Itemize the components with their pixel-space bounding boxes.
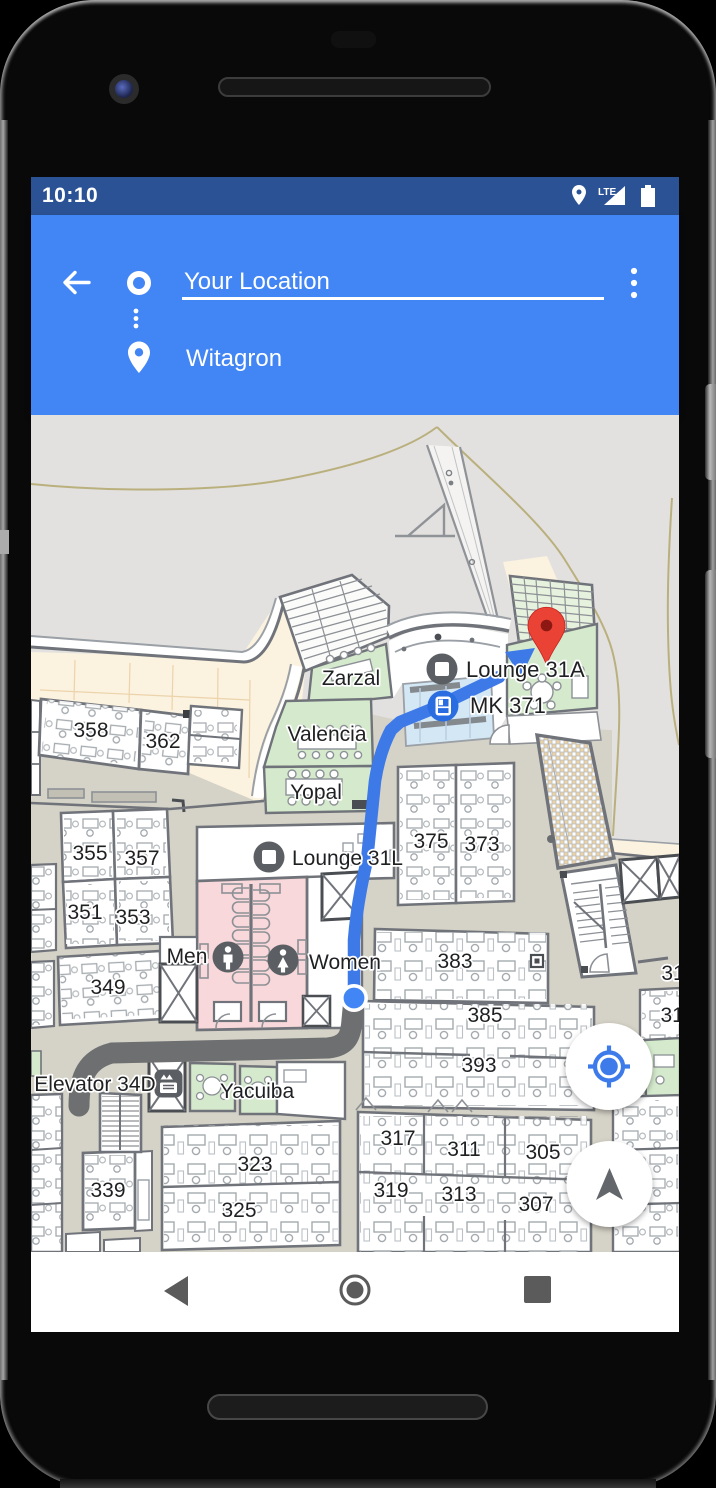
svg-text:319: 319 [373,1179,408,1202]
svg-text:355: 355 [72,842,107,865]
svg-text:Yopal: Yopal [290,781,342,804]
svg-text:305: 305 [525,1141,560,1164]
svg-text:Women: Women [309,951,381,974]
svg-text:362: 362 [145,730,180,753]
svg-text:MK 371: MK 371 [470,693,546,718]
svg-text:339: 339 [90,1179,125,1202]
svg-text:307: 307 [518,1193,553,1216]
svg-text:385: 385 [467,1004,502,1027]
svg-text:383: 383 [437,950,472,973]
svg-text:Lounge 31A: Lounge 31A [466,657,585,682]
svg-text:317: 317 [380,1127,415,1150]
svg-text:319: 319 [660,1004,679,1027]
svg-text:313: 313 [441,1183,476,1206]
svg-text:351: 351 [67,901,102,924]
svg-text:349: 349 [90,976,125,999]
svg-text:Yacuiba: Yacuiba [220,1080,295,1103]
svg-text:Zarzal: Zarzal [322,667,380,690]
svg-text:353: 353 [115,906,150,929]
svg-text:393: 393 [461,1054,496,1077]
svg-text:325: 325 [221,1199,256,1222]
svg-text:Men: Men [167,945,208,968]
svg-text:Lounge 31L: Lounge 31L [292,847,403,870]
svg-text:311: 311 [447,1138,480,1161]
svg-text:31: 31 [661,962,679,985]
svg-text:323: 323 [237,1153,272,1176]
svg-text:358: 358 [73,719,108,742]
svg-text:375: 375 [413,830,448,853]
svg-text:357: 357 [124,847,159,870]
svg-text:Elevator 34D: Elevator 34D [34,1073,155,1096]
svg-text:373: 373 [464,833,499,856]
svg-text:Valencia: Valencia [288,723,367,746]
